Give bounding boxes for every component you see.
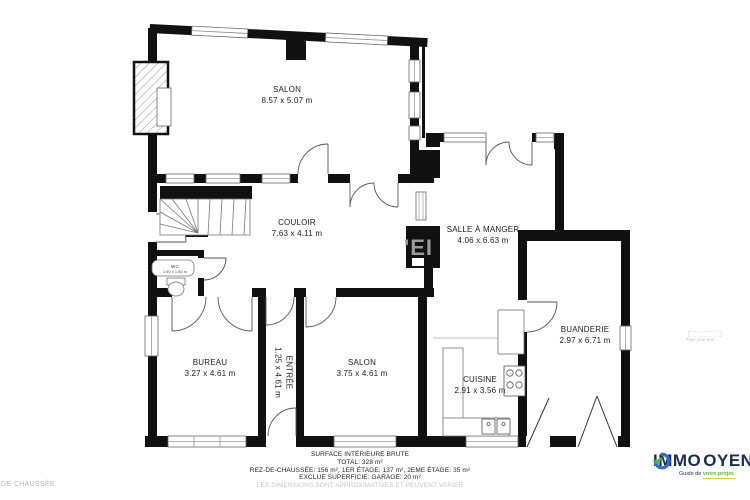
room-dims: 3.27 x 4.61 m <box>140 369 280 379</box>
tagline-right: votre projet. <box>703 471 735 479</box>
kitchen-fixtures <box>433 310 525 436</box>
window <box>334 436 396 447</box>
room-label-salon-top: SALON 8.57 x 5.07 m <box>207 85 367 106</box>
tagline-left: Guide de <box>679 471 703 477</box>
room-name: COULOIR <box>217 218 377 228</box>
room-label-cuisine: CUISINE 2.91 x 3.56 m <box>420 375 540 396</box>
door-arc <box>306 297 336 327</box>
agency-logo: IMMO OYEN Guide de votre projet. <box>653 452 750 498</box>
room-label-entree: ENTRÉE 1.25 x 4.61 m <box>273 333 294 413</box>
room-dims: 2.97 x 6.71 m <box>520 336 650 346</box>
room-name: SALON <box>292 358 432 368</box>
window <box>466 436 518 447</box>
surface-disclaimer: LES DIMENSIONS SONT APPROXIMATIVES ET PE… <box>200 482 520 490</box>
window <box>325 33 387 45</box>
door-arc <box>486 142 509 165</box>
room-dims: 7.63 x 4.11 m <box>217 229 377 239</box>
room-name: BUANDERIE <box>520 325 650 335</box>
radiator-icon <box>416 192 426 220</box>
window <box>409 60 420 82</box>
door-arc <box>266 297 294 325</box>
toilet-icon <box>167 278 185 296</box>
door-arc <box>204 258 226 280</box>
door-arc <box>298 144 328 174</box>
watermark-letters: 'EI <box>404 229 441 269</box>
window <box>166 174 194 183</box>
room-name: WC <box>155 264 195 269</box>
door-arc <box>374 183 398 207</box>
room-label-couloir: COULOIR 7.63 x 4.11 m <box>217 218 377 239</box>
door-arc <box>172 297 206 331</box>
logo-text-right: OYEN <box>703 452 750 470</box>
window <box>145 316 158 356</box>
room-dims: 1.60 x 1.50 m <box>155 270 195 275</box>
window <box>536 133 554 142</box>
window <box>262 174 290 183</box>
surface-total: TOTAL: 328 m² <box>200 459 520 467</box>
floorplan-svg <box>0 0 750 500</box>
window <box>409 126 420 140</box>
room-label-bureau: BUREAU 3.27 x 4.61 m <box>140 358 280 379</box>
agency-logo-wordmark: IMMO OYEN <box>653 452 750 470</box>
room-dims: 1.25 x 4.61 m <box>273 333 283 413</box>
agency-tagline: Guide de votre projet. <box>679 471 750 477</box>
fireplace-icon <box>134 62 171 134</box>
room-dims: 8.57 x 5.07 m <box>207 96 367 106</box>
room-label-buanderie: BUANDERIE 2.97 x 6.71 m <box>520 325 650 346</box>
window <box>409 92 420 118</box>
window <box>168 436 246 447</box>
room-label-wc: WC 1.60 x 1.50 m <box>155 264 195 275</box>
room-name: BUREAU <box>140 358 280 368</box>
door-arc <box>218 297 252 331</box>
surface-summary: SURFACE INTÉRIEURE BRUTE TOTAL: 328 m² R… <box>200 451 520 490</box>
floor-note: DE-CHAUSSÉE <box>1 481 55 488</box>
room-name: SALON <box>207 85 367 95</box>
floorplan-canvas: SALON 8.57 x 5.07 m COULOIR 7.63 x 4.11 … <box>0 0 750 500</box>
surface-excluded: EXCLUE SUPERFICIE: GARAGE: 20 m² <box>200 474 520 482</box>
room-dims: 2.91 x 3.56 m <box>420 386 540 396</box>
salon-wall-notch <box>286 36 306 60</box>
door-arc <box>350 183 374 207</box>
room-dims: 3.75 x 4.61 m <box>292 369 432 379</box>
room-name: CUISINE <box>420 375 540 385</box>
windows-layer <box>145 60 631 447</box>
room-label-salon-bottom: SALON 3.75 x 4.61 m <box>292 358 432 379</box>
door-arc <box>509 142 532 165</box>
surface-title: SURFACE INTÉRIEURE BRUTE <box>200 451 520 459</box>
window <box>444 133 486 142</box>
surface-floors: REZ-DE-CHAUSSÉE: 156 m², 1ER ÉTAGE: 137 … <box>200 467 520 475</box>
window <box>191 26 247 38</box>
window <box>206 174 240 183</box>
text-placeholder: Type your text <box>686 337 714 342</box>
